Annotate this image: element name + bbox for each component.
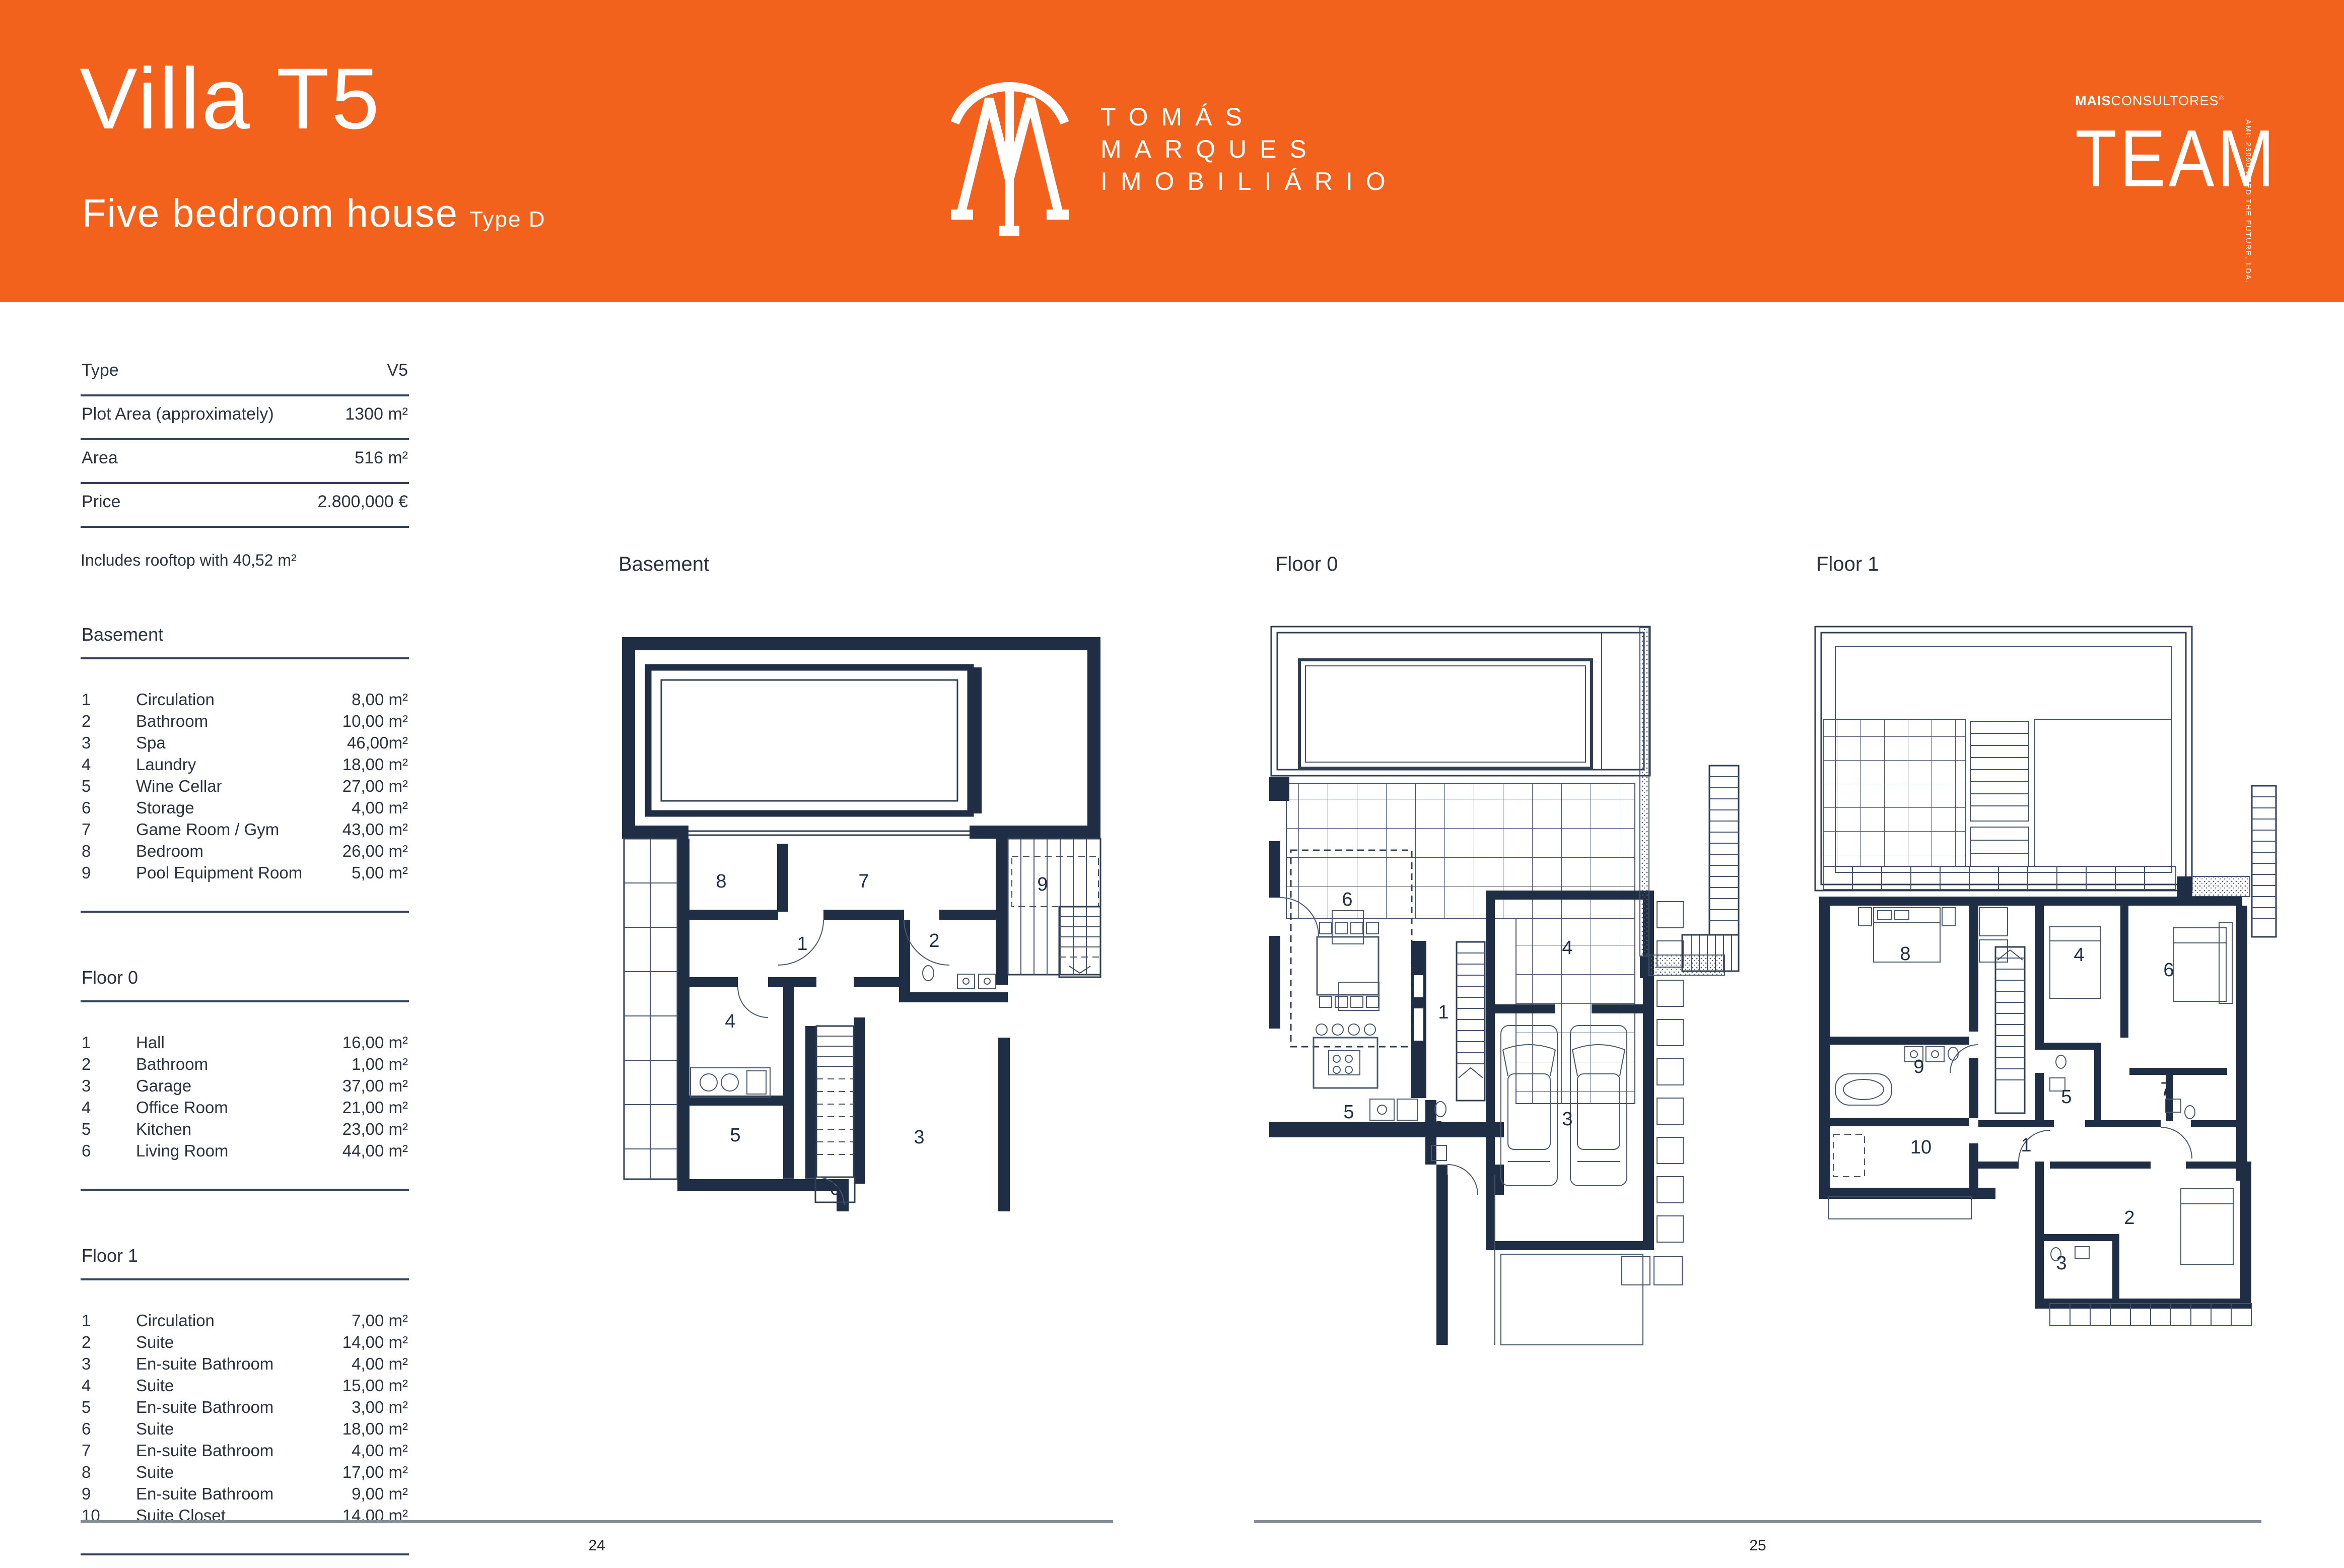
section-title: Basement xyxy=(81,624,409,659)
brand-line-1: TOMÁS xyxy=(1100,101,1399,133)
basement-left-lightwell xyxy=(624,839,677,1179)
svg-text:3: 3 xyxy=(2056,1253,2066,1274)
svg-text:4: 4 xyxy=(2074,944,2084,966)
brand-name: TOMÁS MARQUES IMOBILIÁRIO xyxy=(1100,101,1399,197)
svg-text:7: 7 xyxy=(2160,1079,2171,1100)
room-row: 3Garage37,00 m² xyxy=(82,1075,408,1097)
brand-line-3: IMOBILIÁRIO xyxy=(1100,165,1399,197)
room-row: 2Suite14,00 m² xyxy=(82,1331,408,1353)
room-row: 2Bathroom1,00 m² xyxy=(82,1053,408,1075)
room-row: 9Pool Equipment Room5,00 m² xyxy=(82,862,408,883)
spec-row: Price2.800,000 € xyxy=(81,484,409,528)
plan-title-basement: Basement xyxy=(618,553,709,576)
spec-value: 516 m² xyxy=(355,448,408,468)
svg-text:3: 3 xyxy=(914,1127,924,1148)
spec-label: Price xyxy=(82,492,120,512)
svg-text:5: 5 xyxy=(730,1125,740,1146)
plan-title-floor0: Floor 0 xyxy=(1275,553,1338,576)
room-row: 5En-suite Bathroom3,00 m² xyxy=(82,1396,408,1418)
room-row: 7En-suite Bathroom4,00 m² xyxy=(82,1440,408,1461)
svg-text:5: 5 xyxy=(1343,1102,1354,1123)
room-row: 4Office Room21,00 m² xyxy=(82,1097,408,1118)
svg-text:4: 4 xyxy=(1562,937,1572,959)
svg-text:6: 6 xyxy=(1342,889,1352,910)
spec-row: Area516 m² xyxy=(81,440,409,484)
svg-text:8: 8 xyxy=(1900,943,1910,965)
footer-rule-left xyxy=(81,1520,1113,1523)
maisconsultores-wordmark: MAISCONSULTORES® xyxy=(2075,93,2292,109)
floor0-stairs xyxy=(1457,942,1485,1101)
spec-value: 1300 m² xyxy=(345,404,408,424)
tm-monogram-icon xyxy=(947,60,1073,242)
svg-text:3: 3 xyxy=(1562,1109,1572,1130)
svg-text:9: 9 xyxy=(1037,874,1048,895)
room-row: 1Circulation8,00 m² xyxy=(82,689,408,710)
svg-text:6: 6 xyxy=(2163,960,2174,981)
floor0-floor-plan: 651243 xyxy=(1269,594,1793,1350)
basement-right-terrace xyxy=(1008,839,1100,977)
tomas-marques-logo: TOMÁS MARQUES IMOBILIÁRIO xyxy=(947,60,1399,242)
room-row: 3En-suite Bathroom4,00 m² xyxy=(82,1353,408,1375)
svg-text:1: 1 xyxy=(1438,1002,1449,1023)
svg-text:4: 4 xyxy=(725,1011,735,1032)
brand-line-2: MARQUES xyxy=(1100,133,1399,165)
page-subtitle: Five bedroom houseType D xyxy=(82,190,545,236)
room-row: 9En-suite Bathroom9,00 m² xyxy=(82,1483,408,1505)
room-list-basement: 1Circulation8,00 m²2Bathroom10,00 m²3Spa… xyxy=(81,689,409,913)
section-basement: Basement 1Circulation8,00 m²2Bathroom10,… xyxy=(81,624,409,913)
svg-text:2: 2 xyxy=(1433,1118,1444,1139)
room-row: 8Bedroom26,00 m² xyxy=(82,840,408,862)
room-row: 8Suite17,00 m² xyxy=(82,1461,408,1483)
spec-table: TypeV5Plot Area (approximately)1300 m²Ar… xyxy=(81,353,409,528)
page-number-right: 25 xyxy=(1738,1537,1778,1554)
section-title: Floor 1 xyxy=(81,1245,409,1280)
svg-text:2: 2 xyxy=(929,930,939,951)
svg-text:1: 1 xyxy=(797,933,807,955)
section-floor1: Floor 1 1Circulation7,00 m²2Suite14,00 m… xyxy=(81,1245,409,1555)
svg-text:2: 2 xyxy=(2124,1207,2134,1229)
room-row: 4Suite15,00 m² xyxy=(82,1375,408,1396)
page-number-left: 24 xyxy=(577,1537,617,1554)
room-list-floor0: 1Hall16,00 m²2Bathroom1,00 m²3Garage37,0… xyxy=(81,1032,409,1191)
team-wordmark: TEAM xyxy=(2075,118,2292,198)
floor1-floor-plan: 89104657123 xyxy=(1813,594,2302,1330)
room-list-floor1: 1Circulation7,00 m²2Suite14,00 m²3En-sui… xyxy=(81,1310,409,1555)
svg-text:7: 7 xyxy=(858,871,869,892)
footer-rule-right xyxy=(1254,1520,2261,1523)
section-title: Floor 0 xyxy=(81,967,409,1002)
maisconsultores-team-logo: MAISCONSULTORES® TEAM AMI: 23990 SEED TH… xyxy=(2075,93,2292,186)
svg-text:5: 5 xyxy=(2061,1086,2072,1108)
basement-floor-plan: 879124563 xyxy=(617,594,1103,1211)
room-row: 1Circulation7,00 m² xyxy=(82,1310,408,1331)
room-row: 7Game Room / Gym43,00 m² xyxy=(82,819,408,840)
basement-stairs xyxy=(815,1026,855,1202)
room-row: 5Kitchen23,00 m² xyxy=(82,1118,408,1140)
svg-text:8: 8 xyxy=(716,871,726,892)
spec-label: Type xyxy=(82,361,119,380)
basement-walls xyxy=(622,637,1100,1211)
basement-patio xyxy=(648,667,971,835)
section-floor0: Floor 0 1Hall16,00 m²2Bathroom1,00 m²3Ga… xyxy=(81,967,409,1191)
spec-label: Area xyxy=(82,448,118,468)
svg-text:6: 6 xyxy=(830,1178,840,1199)
spec-value: V5 xyxy=(387,361,408,380)
room-row: 3Spa46,00m² xyxy=(82,732,408,754)
room-row: 6Storage4,00 m² xyxy=(82,797,408,819)
room-row: 6Suite18,00 m² xyxy=(82,1418,408,1440)
room-row: 4Laundry18,00 m² xyxy=(82,754,408,775)
header-band: Villa T5 Five bedroom houseType D TOMÁS … xyxy=(0,0,2344,302)
floor0-pool xyxy=(1271,627,1650,776)
spec-and-room-lists: TypeV5Plot Area (approximately)1300 m²Ar… xyxy=(81,353,409,1555)
room-row: 5Wine Cellar27,00 m² xyxy=(82,775,408,797)
subtitle-text: Five bedroom house xyxy=(82,191,458,235)
room-row: 6Living Room44,00 m² xyxy=(82,1140,408,1162)
brochure-page: { "header": { "accent": "#F2621D", "titl… xyxy=(0,0,2344,1568)
basement-fixtures xyxy=(691,920,996,1205)
svg-text:10: 10 xyxy=(1910,1137,1932,1158)
floor1-roof-terrace xyxy=(1815,627,2250,897)
room-row: 2Bathroom10,00 m² xyxy=(82,710,408,732)
svg-text:9: 9 xyxy=(1913,1056,1924,1077)
svg-text:1: 1 xyxy=(2021,1135,2031,1156)
room-row: 1Hall16,00 m² xyxy=(82,1032,408,1053)
floor1-right-stair xyxy=(2252,786,2276,937)
spec-row: TypeV5 xyxy=(81,353,409,396)
floor1-stairs xyxy=(1995,947,2025,1113)
spec-label: Plot Area (approximately) xyxy=(82,404,274,424)
subtitle-type-tag: Type D xyxy=(469,207,545,232)
plan-title-floor1: Floor 1 xyxy=(1816,553,1879,576)
spec-value: 2.800,000 € xyxy=(317,492,408,512)
floor0-door-arcs xyxy=(1447,1165,1478,1195)
team-side-text: AMI: 23990 SEED THE FUTURE, LDA. xyxy=(2244,119,2252,284)
spec-row: Plot Area (approximately)1300 m² xyxy=(81,396,409,440)
page-title: Villa T5 xyxy=(80,55,381,142)
floor1-walls xyxy=(1819,876,2251,1309)
rooftop-note: Includes rooftop with 40,52 m² xyxy=(81,551,409,570)
